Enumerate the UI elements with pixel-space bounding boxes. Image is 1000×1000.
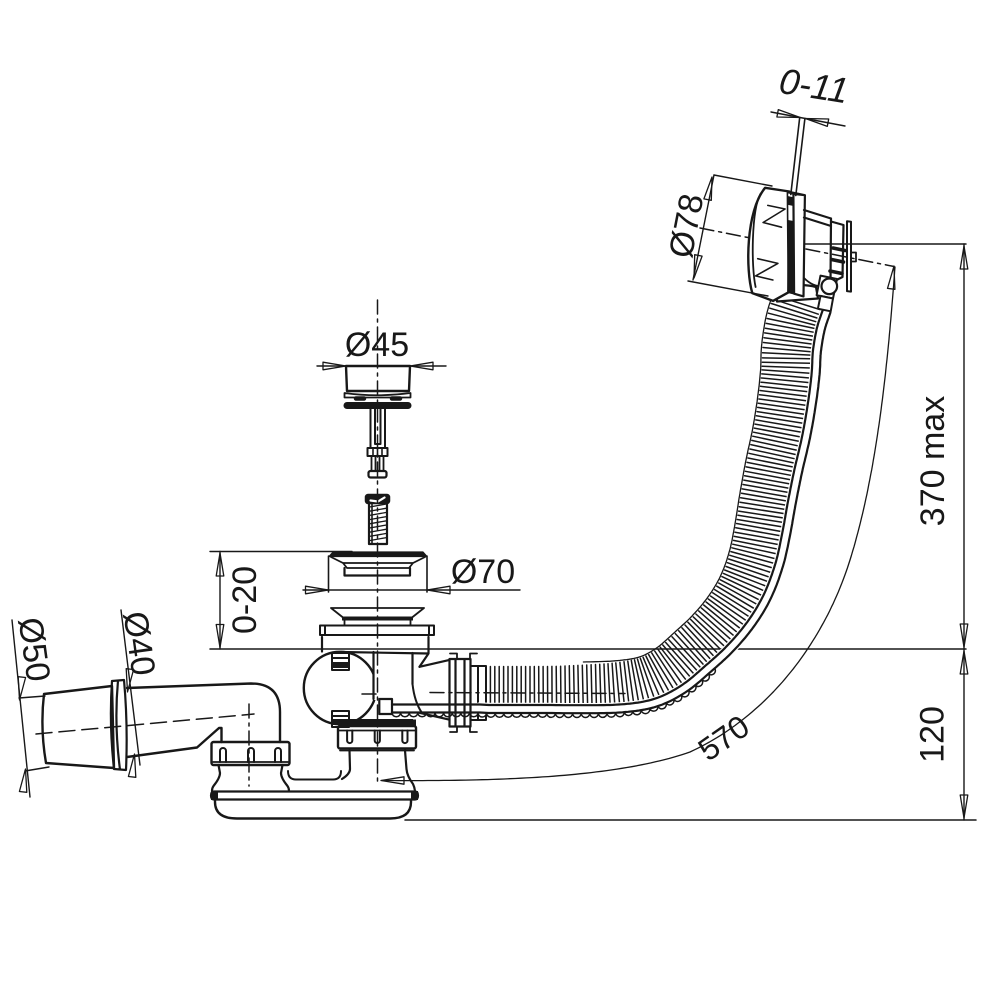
svg-text:120: 120	[914, 706, 952, 763]
svg-text:370 max: 370 max	[914, 396, 952, 526]
svg-text:0-20: 0-20	[226, 566, 264, 634]
svg-text:Ø70: Ø70	[451, 553, 515, 591]
